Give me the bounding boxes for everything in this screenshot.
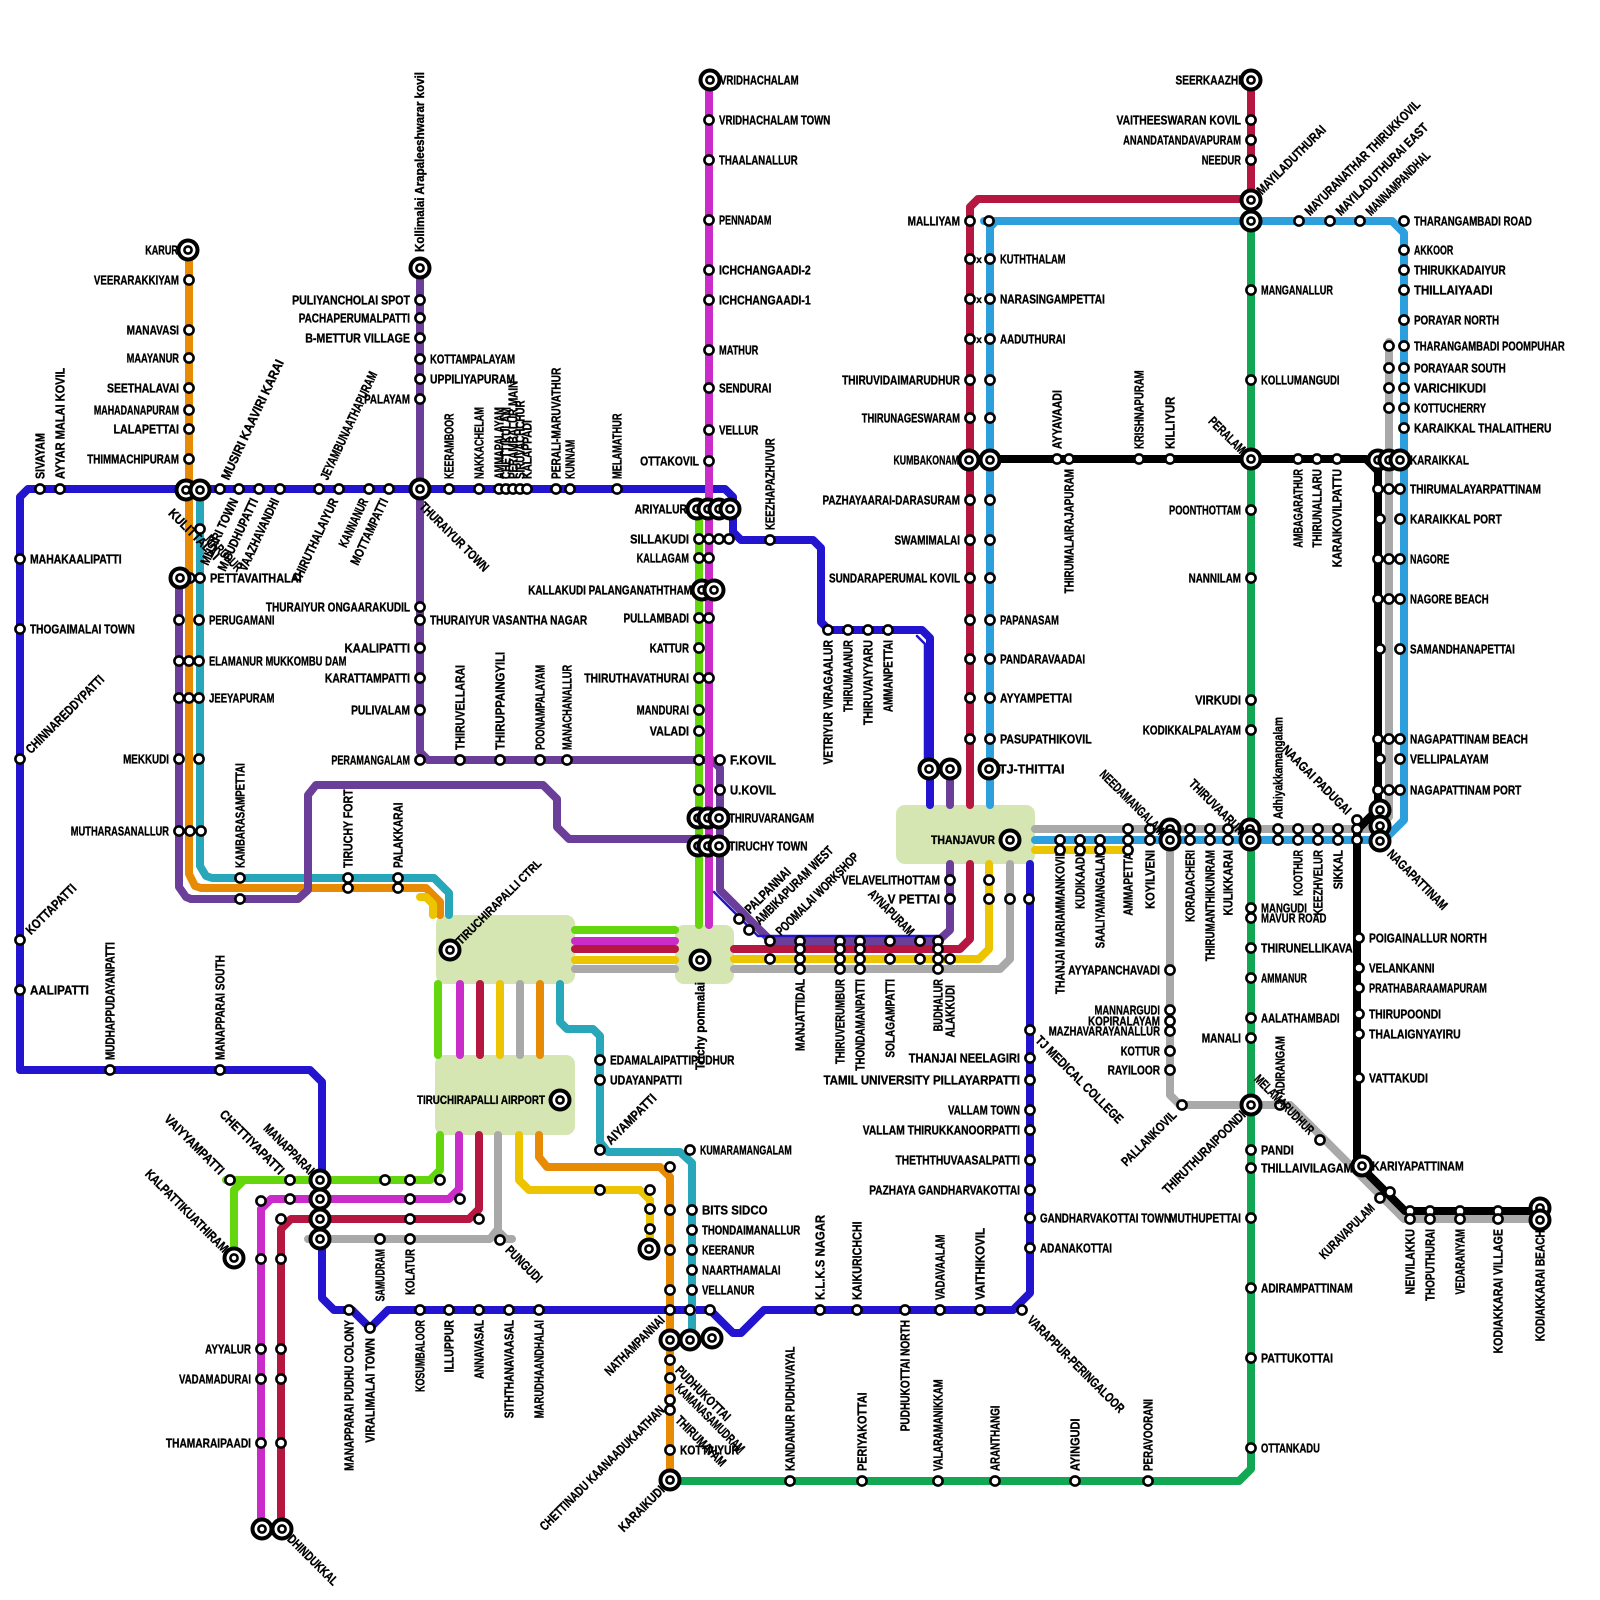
svg-text:KAMBARASAMPETTAI: KAMBARASAMPETTAI xyxy=(233,763,248,868)
svg-text:THONDAMANPATTI: THONDAMANPATTI xyxy=(853,979,868,1071)
svg-text:UPPILIYAPURAM: UPPILIYAPURAM xyxy=(430,372,515,387)
svg-text:MANJATTIDAL: MANJATTIDAL xyxy=(793,979,808,1051)
svg-text:ADANAKOTTAI: ADANAKOTTAI xyxy=(1040,1241,1112,1256)
svg-text:THIRUKKADAIYUR: THIRUKKADAIYUR xyxy=(1414,263,1506,278)
svg-text:OTTAKOVIL: OTTAKOVIL xyxy=(640,454,699,469)
svg-text:KOSUMBALOOR: KOSUMBALOOR xyxy=(413,1320,428,1392)
svg-text:KOOTHUR: KOOTHUR xyxy=(1291,850,1306,896)
svg-text:VALLAM THIRUKKANOORPATTI: VALLAM THIRUKKANOORPATTI xyxy=(863,1123,1020,1138)
svg-text:KARIYAPATTINAM: KARIYAPATTINAM xyxy=(1372,1159,1464,1174)
svg-text:SITHTHANAVAASAL: SITHTHANAVAASAL xyxy=(502,1320,517,1418)
svg-text:VALADI: VALADI xyxy=(650,724,689,739)
svg-text:AALIPATTI: AALIPATTI xyxy=(30,983,89,998)
svg-text:THIRUNAGESWARAM: THIRUNAGESWARAM xyxy=(862,411,960,426)
svg-text:PAZHAYA GANDHARVAKOTTAI: PAZHAYA GANDHARVAKOTTAI xyxy=(869,1183,1020,1198)
svg-text:KOTTAMPALAYAM: KOTTAMPALAYAM xyxy=(430,352,515,367)
svg-text:THOGAIMALAI TOWN: THOGAIMALAI TOWN xyxy=(30,622,135,637)
svg-text:THANJAI NEELAGIRI: THANJAI NEELAGIRI xyxy=(909,1051,1020,1066)
svg-text:PATTUKOTTAI: PATTUKOTTAI xyxy=(1261,1351,1333,1366)
svg-text:AYINGUDI: AYINGUDI xyxy=(1068,1419,1083,1471)
svg-text:THONDAIMANALLUR: THONDAIMANALLUR xyxy=(702,1223,801,1238)
svg-text:AMMANPETTAI: AMMANPETTAI xyxy=(881,640,896,712)
svg-text:SWAMIMALAI: SWAMIMALAI xyxy=(895,533,961,548)
svg-text:THIRUNALLARU: THIRUNALLARU xyxy=(1310,469,1325,548)
svg-text:THIRUPOONDI: THIRUPOONDI xyxy=(1369,1007,1441,1022)
svg-text:PULIYANCHOLAI SPOT: PULIYANCHOLAI SPOT xyxy=(292,293,410,308)
svg-text:KEEZHVELUR: KEEZHVELUR xyxy=(1311,850,1326,916)
svg-text:MAHADANAPURAM: MAHADANAPURAM xyxy=(94,403,179,418)
svg-text:THIRUNELLIKAVAL: THIRUNELLIKAVAL xyxy=(1261,941,1359,956)
svg-text:THOPUTHURAI: THOPUTHURAI xyxy=(1423,1229,1438,1301)
svg-text:MANAPPARAI SOUTH: MANAPPARAI SOUTH xyxy=(213,955,228,1060)
svg-text:THALAIGNYAYIRU: THALAIGNYAYIRU xyxy=(1369,1027,1461,1042)
svg-text:KARUR: KARUR xyxy=(145,243,178,258)
svg-text:OTTANKADU: OTTANKADU xyxy=(1261,1441,1320,1456)
svg-text:AYYAPANCHAVADI: AYYAPANCHAVADI xyxy=(1068,963,1160,978)
svg-text:THARANGAMBADI POOMPUHAR: THARANGAMBADI POOMPUHAR xyxy=(1414,339,1565,354)
svg-text:EDAMALAIPATTIPUDHUR: EDAMALAIPATTIPUDHUR xyxy=(610,1053,735,1068)
svg-text:NAGORE BEACH: NAGORE BEACH xyxy=(1410,592,1489,607)
svg-text:AMMAPETTAI: AMMAPETTAI xyxy=(1121,850,1136,916)
svg-text:PERAVOORANI: PERAVOORANI xyxy=(1141,1399,1156,1471)
svg-text:ALAKKUDI: ALAKKUDI xyxy=(943,985,958,1037)
svg-text:AKKOOR: AKKOOR xyxy=(1414,243,1454,258)
svg-text:KATTUR: KATTUR xyxy=(650,641,690,656)
svg-text:THIRUVIDAIMARUDHUR: THIRUVIDAIMARUDHUR xyxy=(842,373,960,388)
svg-text:PACHAPERUMALPATTI: PACHAPERUMALPATTI xyxy=(299,311,410,326)
svg-text:KANDANUR PUDHUVAYAL: KANDANUR PUDHUVAYAL xyxy=(783,1346,798,1471)
svg-text:MELAMATHUR: MELAMATHUR xyxy=(610,413,625,479)
svg-text:MUDHAPPUDAYANPATTI: MUDHAPPUDAYANPATTI xyxy=(103,942,118,1060)
svg-text:THILLAIYAADI: THILLAIYAADI xyxy=(1414,283,1493,298)
svg-text:MEKKUDI: MEKKUDI xyxy=(123,752,169,767)
svg-text:PALAKKARAI: PALAKKARAI xyxy=(391,803,406,869)
svg-text:AYYAR MALAI KOVIL: AYYAR MALAI KOVIL xyxy=(53,368,68,479)
svg-text:U.KOVIL: U.KOVIL xyxy=(730,783,776,798)
svg-text:VELLIPALAYAM: VELLIPALAYAM xyxy=(1410,752,1489,767)
svg-text:PUDHUKOTTAI NORTH: PUDHUKOTTAI NORTH xyxy=(898,1320,913,1431)
svg-text:PERIYAKOTTAI: PERIYAKOTTAI xyxy=(855,1392,870,1471)
svg-text:x: x xyxy=(976,255,982,266)
svg-text:Kollimalai Arapaleeshwarar kov: Kollimalai Arapaleeshwarar kovil xyxy=(412,72,427,252)
svg-text:TIRUCHY TOWN: TIRUCHY TOWN xyxy=(729,839,808,854)
svg-text:THURAIYUR VASANTHA NAGAR: THURAIYUR VASANTHA NAGAR xyxy=(430,613,588,628)
svg-text:THIRUTHAVATHURAI: THIRUTHAVATHURAI xyxy=(584,671,689,686)
svg-text:ADIRAMPATTINAM: ADIRAMPATTINAM xyxy=(1261,1281,1353,1296)
svg-text:AMBAGARATHUR: AMBAGARATHUR xyxy=(1291,469,1306,548)
svg-text:KEERANUR: KEERANUR xyxy=(702,1243,755,1258)
svg-text:KODIAKKARAI VILLAGE: KODIAKKARAI VILLAGE xyxy=(1491,1229,1506,1354)
svg-text:SEERKAAZHI: SEERKAAZHI xyxy=(1176,73,1242,88)
svg-text:PAPANASAM: PAPANASAM xyxy=(1000,613,1059,628)
svg-text:VALARAMANIKKAM: VALARAMANIKKAM xyxy=(931,1379,946,1471)
svg-text:KUDIKAADU: KUDIKAADU xyxy=(1073,850,1088,909)
svg-text:PETTAVAITHALAI: PETTAVAITHALAI xyxy=(210,571,302,586)
svg-text:VIRKUDI: VIRKUDI xyxy=(1195,693,1241,708)
svg-text:MANDURAI: MANDURAI xyxy=(637,703,689,718)
svg-text:KODIAKKARAI BEACH: KODIAKKARAI BEACH xyxy=(1533,1230,1548,1341)
svg-text:LALAPETTAI: LALAPETTAI xyxy=(114,422,180,437)
svg-text:KARAIKOVILPATTU: KARAIKOVILPATTU xyxy=(1330,469,1345,567)
svg-text:KARATTAMPATTI: KARATTAMPATTI xyxy=(325,671,410,686)
svg-text:VADAMADURAI: VADAMADURAI xyxy=(179,1372,251,1387)
svg-text:KILLIYUR: KILLIYUR xyxy=(1163,396,1178,449)
svg-text:NAGORE: NAGORE xyxy=(1410,552,1450,567)
svg-text:TIRUCHIRAPALLI AIRPORT: TIRUCHIRAPALLI AIRPORT xyxy=(417,1093,546,1107)
svg-text:MAAYANUR: MAAYANUR xyxy=(127,351,180,366)
svg-text:VAITHEESWARAN KOVIL: VAITHEESWARAN KOVIL xyxy=(1117,113,1242,128)
svg-text:THIRUMALAIRAJAPURAM: THIRUMALAIRAJAPURAM xyxy=(1062,469,1077,594)
svg-text:MANALI: MANALI xyxy=(1202,1031,1241,1046)
svg-text:SEETHALAVAI: SEETHALAVAI xyxy=(107,381,179,396)
svg-text:KARAIKKAL THALAITHERU: KARAIKKAL THALAITHERU xyxy=(1414,421,1552,436)
svg-text:THANJAI MARIAMMANKOVIL: THANJAI MARIAMMANKOVIL xyxy=(1053,850,1068,994)
svg-text:Trichy ponmalai: Trichy ponmalai xyxy=(693,982,708,1070)
svg-text:PERALI-MARUVATHUR: PERALI-MARUVATHUR xyxy=(549,367,564,479)
svg-text:MAHAKAALIPATTI: MAHAKAALIPATTI xyxy=(30,552,122,567)
svg-text:VIRALIMALAI TOWN: VIRALIMALAI TOWN xyxy=(363,1338,378,1443)
svg-text:POONTHOTTAM: POONTHOTTAM xyxy=(1169,503,1241,518)
svg-text:UDAYANPATTI: UDAYANPATTI xyxy=(610,1073,682,1088)
svg-text:MUTHARASANALLUR: MUTHARASANALLUR xyxy=(71,824,170,839)
svg-text:PULLAMBADI: PULLAMBADI xyxy=(624,611,690,626)
svg-text:SOLAGAMPATTI: SOLAGAMPATTI xyxy=(883,979,898,1058)
svg-text:ANNAVASAL: ANNAVASAL xyxy=(472,1320,487,1379)
svg-text:THIRUVAIYYARU: THIRUVAIYYARU xyxy=(861,640,876,725)
svg-text:POONAMPALAYAM: POONAMPALAYAM xyxy=(533,665,548,750)
svg-text:KUMARAMANGALAM: KUMARAMANGALAM xyxy=(700,1143,792,1158)
svg-text:KARAIKKAL PORT: KARAIKKAL PORT xyxy=(1410,512,1502,527)
svg-text:THIRUVERUMBUR: THIRUVERUMBUR xyxy=(833,979,848,1065)
svg-text:PULIVALAM: PULIVALAM xyxy=(351,703,410,718)
svg-text:THILLAIVILAGAM: THILLAIVILAGAM xyxy=(1261,1161,1353,1176)
svg-text:KALLAGAM: KALLAGAM xyxy=(637,551,689,566)
svg-text:THIRUVARANGAM: THIRUVARANGAM xyxy=(729,811,814,826)
svg-text:THETHTHUVAASALPATTI: THETHTHUVAASALPATTI xyxy=(896,1153,1021,1168)
svg-text:VELLANUR: VELLANUR xyxy=(702,1283,755,1298)
svg-text:MALLIYAM: MALLIYAM xyxy=(908,214,960,229)
svg-text:VRIDHACHALAM TOWN: VRIDHACHALAM TOWN xyxy=(719,113,830,128)
svg-text:RAYILOOR: RAYILOOR xyxy=(1108,1063,1161,1078)
svg-text:KUNNAM: KUNNAM xyxy=(563,440,578,479)
svg-text:AALATHAMBADI: AALATHAMBADI xyxy=(1261,1011,1340,1026)
svg-text:KEEZHAPAZHUVUR: KEEZHAPAZHUVUR xyxy=(763,438,778,530)
svg-text:F.KOVIL: F.KOVIL xyxy=(730,753,776,768)
svg-text:VELANKANNI: VELANKANNI xyxy=(1369,961,1435,976)
svg-text:NEEDUR: NEEDUR xyxy=(1202,153,1242,168)
svg-text:KALAPPADI: KALAPPADI xyxy=(520,420,535,479)
svg-text:VARICHIKUDI: VARICHIKUDI xyxy=(1414,381,1486,396)
svg-text:KOTTUCHERRY: KOTTUCHERRY xyxy=(1414,401,1486,416)
svg-text:SAMUDRAM: SAMUDRAM xyxy=(373,1249,388,1301)
svg-text:TIRUCHY FORT: TIRUCHY FORT xyxy=(341,789,356,868)
svg-text:x: x xyxy=(976,335,982,346)
svg-text:THAALANALLUR: THAALANALLUR xyxy=(719,153,798,168)
svg-text:THIRUPPAINGYILI: THIRUPPAINGYILI xyxy=(493,652,508,750)
svg-text:PANDARAVAADAI: PANDARAVAADAI xyxy=(1000,652,1085,667)
svg-text:MATHUR: MATHUR xyxy=(719,343,759,358)
svg-text:KOLLUMANGUDI: KOLLUMANGUDI xyxy=(1261,373,1340,388)
svg-text:K.L.K.S NAGAR: K.L.K.S NAGAR xyxy=(813,1214,828,1300)
svg-text:MAVUR ROAD: MAVUR ROAD xyxy=(1261,911,1327,926)
svg-text:SAMANDHANAPETTAI: SAMANDHANAPETTAI xyxy=(1410,642,1515,657)
svg-text:THAMARAIPAADI: THAMARAIPAADI xyxy=(166,1436,251,1451)
svg-text:JEEYAPURAM: JEEYAPURAM xyxy=(209,691,275,706)
svg-text:NAGAPATTINAM BEACH: NAGAPATTINAM BEACH xyxy=(1410,732,1528,747)
svg-text:SILLAKUDI: SILLAKUDI xyxy=(630,532,689,547)
svg-text:PALAYAM: PALAYAM xyxy=(364,392,410,407)
svg-text:GANDHARVAKOTTAI TOWN: GANDHARVAKOTTAI TOWN xyxy=(1040,1211,1171,1226)
svg-text:NAARTHAMALAI: NAARTHAMALAI xyxy=(702,1263,781,1278)
svg-text:MARUDHAANDHALAI: MARUDHAANDHALAI xyxy=(532,1320,547,1418)
svg-text:NEIVILAKKU: NEIVILAKKU xyxy=(1403,1229,1418,1295)
svg-text:PERAMANGALAM: PERAMANGALAM xyxy=(331,753,410,768)
svg-text:THIRUMANTHIKUNRAM: THIRUMANTHIKUNRAM xyxy=(1203,850,1218,961)
svg-text:SAALIYAMANGALAM: SAALIYAMANGALAM xyxy=(1093,850,1108,948)
svg-text:KUTHTHALAM: KUTHTHALAM xyxy=(1000,252,1066,267)
svg-text:PORAYAAR SOUTH: PORAYAAR SOUTH xyxy=(1414,361,1506,376)
svg-text:KORADACHERI: KORADACHERI xyxy=(1183,850,1198,922)
svg-text:SIVAYAM: SIVAYAM xyxy=(33,433,48,479)
svg-text:KAALIPATTI: KAALIPATTI xyxy=(345,641,411,656)
svg-text:PERUGAMANI: PERUGAMANI xyxy=(209,613,275,628)
svg-text:THIRUVELLARAI: THIRUVELLARAI xyxy=(453,665,468,750)
svg-text:NARASINGAMPETTAI: NARASINGAMPETTAI xyxy=(1000,292,1105,307)
svg-text:AMMANUR: AMMANUR xyxy=(1261,971,1307,986)
svg-text:BITS SIDCO: BITS SIDCO xyxy=(702,1203,768,1218)
svg-text:KODIKKALPALAYAM: KODIKKALPALAYAM xyxy=(1143,723,1241,738)
svg-text:AYYAMPETTAI: AYYAMPETTAI xyxy=(1000,691,1072,706)
svg-text:TAMIL UNIVERSITY PILLAYARPATTI: TAMIL UNIVERSITY PILLAYARPATTI xyxy=(824,1073,1021,1088)
svg-text:VEDARANYAM: VEDARANYAM xyxy=(1453,1229,1468,1295)
svg-text:TJ-THITTAI: TJ-THITTAI xyxy=(999,762,1065,777)
svg-text:THARANGAMBADI ROAD: THARANGAMBADI ROAD xyxy=(1414,214,1532,229)
svg-text:KOTTUR: KOTTUR xyxy=(1121,1044,1161,1059)
svg-text:MANAVASI: MANAVASI xyxy=(127,323,179,338)
svg-text:POIGAINALLUR NORTH: POIGAINALLUR NORTH xyxy=(1369,931,1487,946)
svg-text:ICHCHANGAADI-2: ICHCHANGAADI-2 xyxy=(719,263,811,278)
svg-text:SENDURAI: SENDURAI xyxy=(719,381,771,396)
svg-text:THURAIYUR ONGAARAKUDIL: THURAIYUR ONGAARAKUDIL xyxy=(266,600,410,615)
svg-text:THIMMACHIPURAM: THIMMACHIPURAM xyxy=(87,452,179,467)
svg-text:VALLAM TOWN: VALLAM TOWN xyxy=(948,1103,1020,1118)
svg-text:THANJAVUR: THANJAVUR xyxy=(931,833,995,847)
svg-text:AYYALUR: AYYALUR xyxy=(205,1342,251,1357)
svg-text:MANACHANALLUR: MANACHANALLUR xyxy=(560,664,575,750)
svg-text:KULIKKARAI: KULIKKARAI xyxy=(1221,850,1236,916)
svg-text:KUMBAKONAM: KUMBAKONAM xyxy=(894,453,960,468)
svg-text:ICHCHANGAADI-1: ICHCHANGAADI-1 xyxy=(719,293,811,308)
svg-text:MAZHAVARAYANALLUR: MAZHAVARAYANALLUR xyxy=(1049,1024,1161,1039)
svg-text:THIRUMALAYARPATTINAM: THIRUMALAYARPATTINAM xyxy=(1410,482,1541,497)
svg-text:KOLATUR: KOLATUR xyxy=(403,1249,418,1295)
svg-text:KAIKURICHCHI: KAIKURICHCHI xyxy=(850,1221,865,1300)
svg-text:PORAYAR NORTH: PORAYAR NORTH xyxy=(1414,313,1499,328)
svg-text:AYYAVAADI: AYYAVAADI xyxy=(1050,390,1065,449)
svg-text:x: x xyxy=(976,295,982,306)
svg-text:VRIDHACHALAM: VRIDHACHALAM xyxy=(720,73,799,88)
svg-text:ARIYALUR: ARIYALUR xyxy=(635,502,688,517)
svg-text:VELAVELITHOTTAM: VELAVELITHOTTAM xyxy=(842,873,940,888)
svg-text:NANNILAM: NANNILAM xyxy=(1189,571,1241,586)
svg-text:ELAMANUR MUKKOMBU DAM: ELAMANUR MUKKOMBU DAM xyxy=(209,654,347,669)
svg-text:NAGAPATTINAM PORT: NAGAPATTINAM PORT xyxy=(1410,783,1521,798)
svg-text:SIKKAL: SIKKAL xyxy=(1331,850,1346,889)
svg-text:MUTHUPETTAI: MUTHUPETTAI xyxy=(1169,1211,1241,1226)
svg-text:KARAIKKAL: KARAIKKAL xyxy=(1410,453,1469,468)
svg-text:VADAVAALAM: VADAVAALAM xyxy=(933,1235,948,1301)
svg-text:KRISHNAPURAM: KRISHNAPURAM xyxy=(1132,370,1147,449)
svg-text:B-METTUR VILLAGE: B-METTUR VILLAGE xyxy=(305,331,410,346)
svg-text:VATTAKUDI: VATTAKUDI xyxy=(1369,1071,1428,1086)
svg-text:V PETTAI: V PETTAI xyxy=(888,892,940,907)
svg-text:MANGANALLUR: MANGANALLUR xyxy=(1261,283,1333,298)
svg-text:PENNADAM: PENNADAM xyxy=(719,213,771,228)
svg-text:Adhiyakkamangalam: Adhiyakkamangalam xyxy=(1271,717,1286,819)
svg-text:KOYILVENI: KOYILVENI xyxy=(1143,850,1158,909)
svg-text:KOTTAIYUR: KOTTAIYUR xyxy=(680,1443,739,1458)
svg-text:PANDI: PANDI xyxy=(1261,1143,1294,1158)
svg-text:PRATHABARAAMAPURAM: PRATHABARAAMAPURAM xyxy=(1369,981,1487,996)
svg-text:THIRUMAANUR: THIRUMAANUR xyxy=(841,640,856,712)
svg-text:ARANTHANGI: ARANTHANGI xyxy=(988,1406,1003,1472)
svg-text:ILLUPPUR: ILLUPPUR xyxy=(442,1320,457,1373)
svg-text:VELLUR: VELLUR xyxy=(719,423,759,438)
svg-text:PAZHAYAARAI-DARASURAM: PAZHAYAARAI-DARASURAM xyxy=(823,493,961,508)
svg-text:KEERAMBOOR: KEERAMBOOR xyxy=(442,413,457,479)
svg-text:KALLAKUDI PALANGANATHTHAM: KALLAKUDI PALANGANATHTHAM xyxy=(528,583,692,598)
svg-text:VETRIYUR VIRAGAALUR: VETRIYUR VIRAGAALUR xyxy=(821,640,836,765)
svg-text:PASUPATHIKOVIL: PASUPATHIKOVIL xyxy=(1000,732,1092,747)
svg-text:VAITHIKOVIL: VAITHIKOVIL xyxy=(973,1228,988,1300)
svg-text:VEERARAKKIYAM: VEERARAKKIYAM xyxy=(94,273,179,288)
svg-text:ANANDATANDAVAPURAM: ANANDATANDAVAPURAM xyxy=(1123,133,1241,148)
svg-text:MANAPPARAI PUDHU COLONY: MANAPPARAI PUDHU COLONY xyxy=(342,1320,357,1471)
svg-text:AADUTHURAI: AADUTHURAI xyxy=(1000,332,1066,347)
svg-text:NAKKACHELAM: NAKKACHELAM xyxy=(472,407,487,479)
svg-text:SUNDARAPERUMAL KOVIL: SUNDARAPERUMAL KOVIL xyxy=(829,571,960,586)
